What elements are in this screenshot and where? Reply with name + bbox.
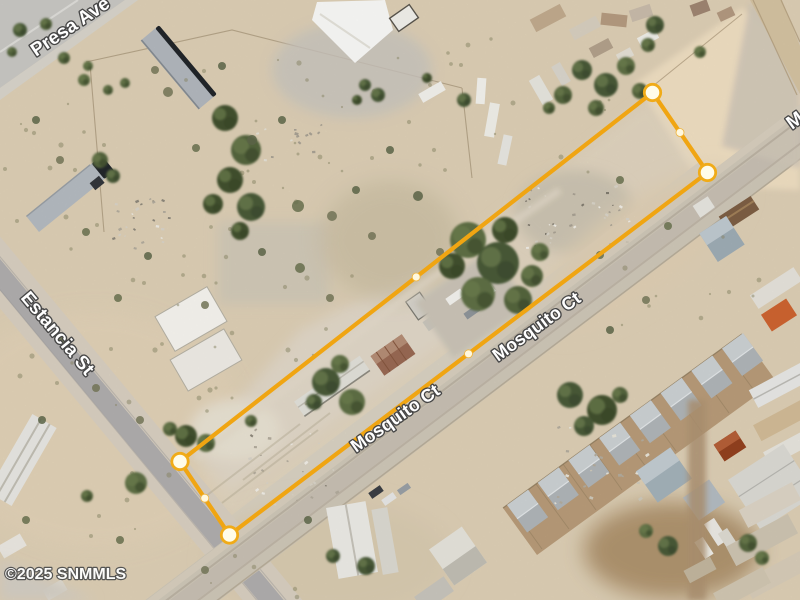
svg-text:©2025 SNMMLS: ©2025 SNMMLS [5,566,126,583]
